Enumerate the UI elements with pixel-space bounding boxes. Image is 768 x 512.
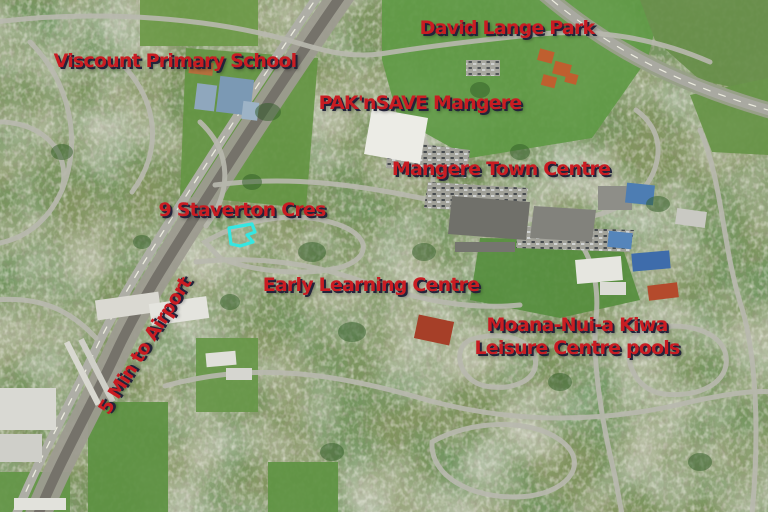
map-annotations: Viscount Primary School David Lange Park…: [0, 0, 768, 512]
label-leisure-line2: Leisure Centre pools: [474, 337, 679, 360]
label-david-lange-park: David Lange Park: [420, 17, 595, 39]
label-early-learning-centre: Early Learning Centre: [263, 274, 480, 296]
label-staverton-cres: 9 Staverton Cres: [158, 199, 325, 221]
label-paknsave-mangere: PAK'nSAVE Mangere: [319, 92, 522, 114]
label-viscount-primary-school: Viscount Primary School: [54, 50, 297, 72]
label-leisure-line1: Moana-Nui-a Kiwa: [474, 314, 679, 337]
label-leisure-centre: Moana-Nui-a Kiwa Leisure Centre pools: [474, 314, 679, 360]
label-mangere-town-centre: Mangere Town Centre: [392, 158, 610, 180]
aerial-map: Viscount Primary School David Lange Park…: [0, 0, 768, 512]
label-airport-drive-time: 5 Min to Airport: [94, 274, 196, 419]
